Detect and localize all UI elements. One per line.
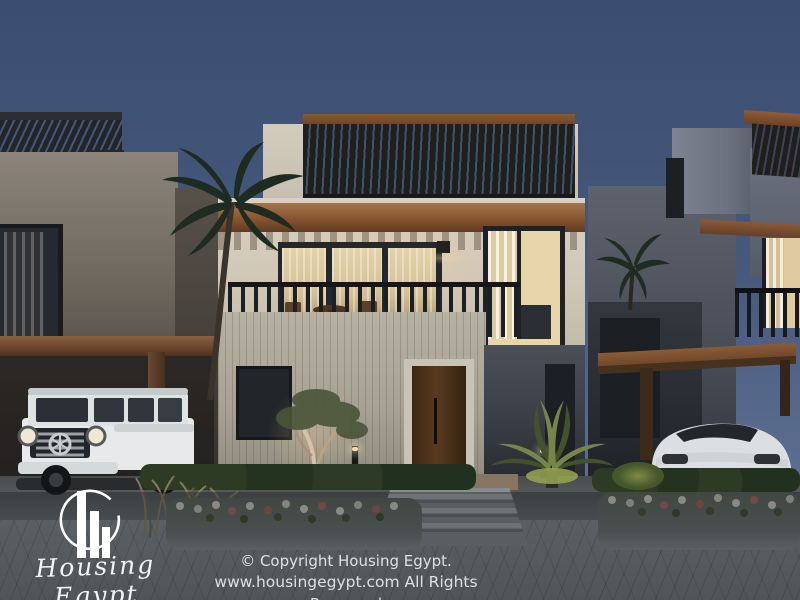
right-villa-rooftop-pergola [752, 122, 800, 177]
copyright-text: © Copyright Housing Egypt. www.housingeg… [186, 551, 506, 600]
right-villa-balcony-railing [735, 288, 800, 337]
door-handle [434, 398, 437, 444]
logo-wordmark: Housing Egypt [7, 549, 183, 595]
copyright-line-1: © Copyright Housing Egypt. [186, 551, 506, 572]
lit-bush [612, 462, 664, 490]
center-villa-rooftop-pergola [303, 124, 575, 200]
small-palm-tree [592, 222, 672, 312]
architectural-render-scene: Housing Egypt © Copyright Housing Egypt.… [0, 0, 800, 600]
front-palm-plant [486, 372, 616, 492]
right-villa-slit-window [666, 158, 684, 218]
lit-window-interior-shadow [520, 305, 551, 339]
tall-palm-tree [160, 140, 310, 410]
right-villa-top-box [672, 128, 758, 214]
left-villa-curtain [4, 232, 44, 348]
copyright-line-2: www.housingegypt.com All Rights Reserved [186, 572, 506, 600]
